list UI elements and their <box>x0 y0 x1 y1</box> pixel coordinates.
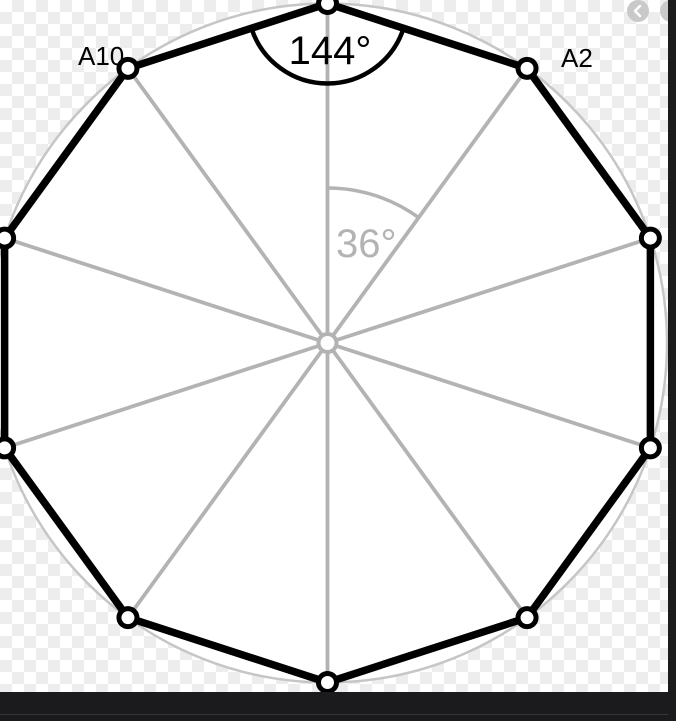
bottom-panel <box>0 692 676 721</box>
prev-button[interactable] <box>627 0 649 22</box>
interior-angle-label: 144° <box>289 29 372 73</box>
vertex-label-a10: A10 <box>78 41 124 71</box>
vertex-point-a6[interactable] <box>319 674 337 692</box>
geometry-figure: 36° 144° A10 A2 <box>0 0 676 721</box>
right-edge-panel <box>668 0 676 721</box>
vertex-point-a5[interactable] <box>518 609 536 627</box>
vertex-point-a7[interactable] <box>119 609 137 627</box>
vertex-point-a2[interactable] <box>518 59 536 77</box>
bottom-panel-divider <box>0 714 676 715</box>
canvas-area: 36° 144° A10 A2 <box>0 0 676 721</box>
vertex-label-a2: A2 <box>561 43 593 73</box>
center-point[interactable] <box>319 334 337 352</box>
vertex-point-a4[interactable] <box>641 439 659 457</box>
central-angle-label: 36° <box>336 222 397 266</box>
vertex-point-a1[interactable] <box>319 0 337 13</box>
vertex-point-a3[interactable] <box>641 229 659 247</box>
chevron-left-icon <box>627 0 649 22</box>
vertex-point-a8[interactable] <box>0 439 14 457</box>
vertex-point-a9[interactable] <box>0 229 14 247</box>
